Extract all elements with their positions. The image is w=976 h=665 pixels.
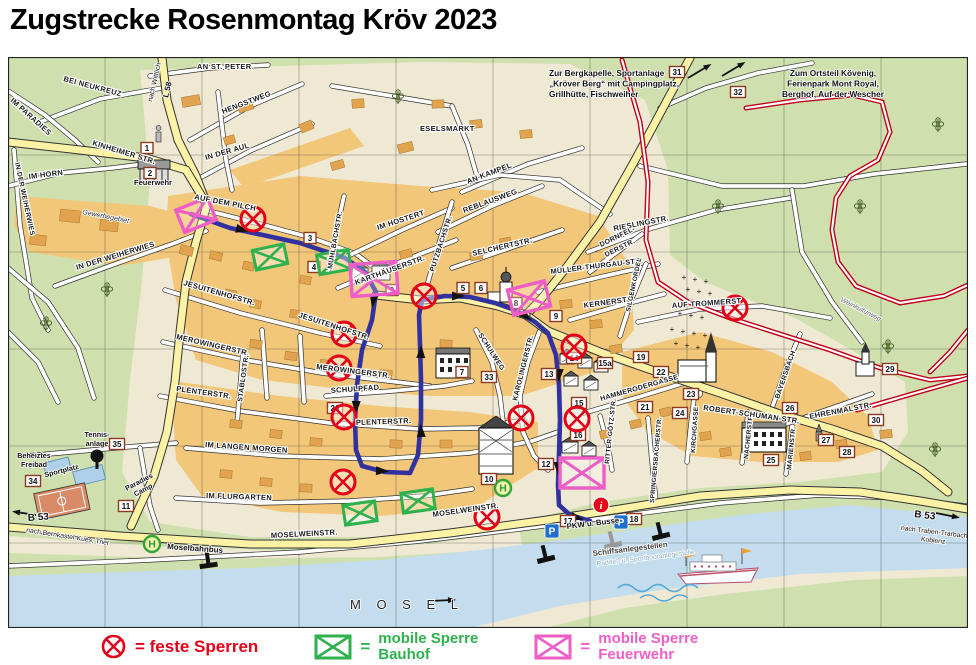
route-marker: 5 <box>457 283 469 294</box>
grave-cross-icon: + <box>703 331 708 340</box>
route-marker: 12 <box>539 459 554 470</box>
circle <box>694 565 696 567</box>
route-marker: 27 <box>819 435 834 446</box>
route-marker-number: 9 <box>554 312 559 321</box>
route-marker-number: 26 <box>786 404 795 413</box>
feste-sperre-icon <box>331 470 355 494</box>
route-marker-number: 12 <box>542 460 551 469</box>
map-annotation-line: Tennis- <box>84 430 110 439</box>
building <box>300 484 312 492</box>
building <box>800 451 812 460</box>
building <box>260 478 273 487</box>
bus-stop-icon: H <box>144 536 160 552</box>
route-marker: 21 <box>638 402 653 413</box>
mobile-sperre-feuerwehr-icon <box>560 458 604 488</box>
map-annotation-line: anlage <box>86 439 109 448</box>
map-annotation-line: Ferienpark Mont Royal, <box>787 79 879 89</box>
building <box>230 419 243 428</box>
building <box>699 431 711 440</box>
route-marker-number: 31 <box>673 68 682 77</box>
rect <box>448 367 452 372</box>
grave-cross-icon: + <box>708 289 713 298</box>
route-marker: 32 <box>731 87 746 98</box>
map-annotation-line: B 53 <box>27 512 49 524</box>
route-marker: 31 <box>670 67 685 78</box>
route-marker-number: 22 <box>657 368 666 377</box>
map-annotation: Zum Ortsteil Kövenig,Ferienpark Mont Roy… <box>782 68 885 99</box>
map-annotation-line: Freibad <box>21 460 47 469</box>
legend-bauhof-line2: Bauhof <box>378 646 430 663</box>
map-annotation: B 53 <box>27 512 49 524</box>
rect <box>778 441 782 446</box>
building <box>440 340 452 348</box>
legend-equals2: = <box>580 637 590 657</box>
route-marker: 25 <box>764 455 779 466</box>
route-marker: 11 <box>119 501 134 512</box>
route-marker-number: 16 <box>574 431 583 440</box>
circle <box>708 565 710 567</box>
route-marker: 7 <box>456 367 468 378</box>
parking-icon: P <box>545 524 559 538</box>
grave-cross-icon: + <box>689 311 694 320</box>
building <box>560 299 573 308</box>
rect <box>456 358 460 363</box>
route-marker-number: 18 <box>630 515 639 524</box>
rect <box>762 432 766 437</box>
route-marker-number: 27 <box>822 436 831 445</box>
route-marker-number: 24 <box>676 409 685 418</box>
route-marker: 9 <box>550 311 562 322</box>
legend-mobile-sperre-feuerwehr: = mobile Sperre Feuerwehr <box>534 631 698 663</box>
bus-stop-icon: H <box>495 480 511 496</box>
circle <box>722 565 724 567</box>
route-marker: 34 <box>26 476 41 487</box>
feste-sperre-icon <box>412 284 436 308</box>
map-annotation-line: Berghof, Auf der Wescher <box>782 89 885 99</box>
route-marker-number: 10 <box>485 475 494 484</box>
building <box>285 351 298 361</box>
map-legend: = feste Sperren = mobile Sperre Bauhof = <box>0 628 976 665</box>
text: H <box>148 539 156 551</box>
map-annotation: Feuerwehr <box>134 178 172 187</box>
grave-cross-icon: + <box>693 275 698 284</box>
route-marker: 35 <box>110 439 125 450</box>
route-marker: 26 <box>783 403 798 414</box>
feuerwehr-icon <box>534 634 572 660</box>
text: H <box>499 483 507 495</box>
rect <box>754 441 758 446</box>
rect <box>778 432 782 437</box>
tennis-icon <box>91 450 104 463</box>
building <box>59 209 80 223</box>
circle <box>729 565 731 567</box>
route-marker: 23 <box>684 389 699 400</box>
route-marker-number: 34 <box>29 477 38 486</box>
route-marker: 18 <box>627 514 642 525</box>
route-marker: 1 <box>141 143 153 154</box>
building <box>30 234 47 246</box>
route-marker-number: 28 <box>843 448 852 457</box>
route-marker-number: 33 <box>485 373 494 382</box>
legend-bauhof-label: mobile Sperre Bauhof <box>378 631 478 663</box>
rect <box>754 432 758 437</box>
feste-sperre-icon <box>100 633 127 660</box>
route-marker: 15a <box>598 358 613 369</box>
legend-feuerwehr-line2: Feuerwehr <box>598 646 674 663</box>
rect <box>440 358 444 363</box>
rect <box>440 367 444 372</box>
route-marker-number: 29 <box>886 365 895 374</box>
grave-cross-icon: + <box>696 343 701 352</box>
route-marker-number: 7 <box>460 368 465 377</box>
building <box>310 438 323 447</box>
building <box>440 440 452 448</box>
route-marker: 28 <box>840 447 855 458</box>
text: P <box>549 527 556 538</box>
route-marker-number: 32 <box>734 88 743 97</box>
route-marker-number: 13 <box>545 370 554 379</box>
building <box>250 339 263 349</box>
rect <box>436 348 470 354</box>
map-annotation-line: Feuerwehr <box>134 178 172 187</box>
route-marker: 22 <box>654 367 669 378</box>
map-annotation-line: Beheiztes <box>17 451 51 460</box>
route-marker-number: 23 <box>687 390 696 399</box>
rect <box>479 428 513 474</box>
feste-sperre-icon <box>509 406 533 430</box>
grave-cross-icon: + <box>681 327 686 336</box>
timber-hall-icon <box>479 416 513 474</box>
map-annotation: Tennis-anlage <box>84 430 110 448</box>
grave-cross-icon: + <box>678 309 683 318</box>
route-marker-number: 3 <box>308 234 313 243</box>
route-marker-number: 19 <box>637 353 646 362</box>
route-marker-number: 11 <box>122 502 131 511</box>
street-label: ESELSMARKT <box>420 124 475 133</box>
building <box>432 100 444 108</box>
route-marker-number: 2 <box>148 169 153 178</box>
building <box>880 429 893 438</box>
grave-cross-icon: + <box>685 341 690 350</box>
grave-cross-icon: + <box>700 313 705 322</box>
rect <box>678 360 710 382</box>
building <box>719 447 731 456</box>
legend-feste-sperren-label: = feste Sperren <box>135 637 258 657</box>
info-icon: i <box>593 497 609 513</box>
route-marker-number: 4 <box>312 263 317 272</box>
building <box>390 440 402 448</box>
building <box>609 344 622 354</box>
route-marker-number: 15a <box>598 359 612 368</box>
legend-feste-sperren: = feste Sperren <box>100 633 258 660</box>
grave-cross-icon: + <box>704 277 709 286</box>
route-marker: 3 <box>304 233 316 244</box>
map-annotation-line: Zur Bergkapelle, Sportanlage <box>549 68 665 78</box>
route-marker: 2 <box>144 168 156 179</box>
legend-bauhof-line1: mobile Sperre <box>378 630 478 647</box>
route-marker: 29 <box>883 364 898 375</box>
legend-equals: = <box>360 637 370 657</box>
route-marker: 13 <box>542 369 557 380</box>
grave-cross-icon: + <box>692 329 697 338</box>
rect <box>770 441 774 446</box>
feste-sperre-icon <box>332 405 356 429</box>
statue-icon <box>156 132 161 142</box>
rect <box>770 432 774 437</box>
legend-feuerwehr-label: mobile Sperre Feuerwehr <box>598 631 698 663</box>
map-annotation-line: Grillhütte, Fischweiher <box>549 89 639 99</box>
tennis-icon <box>96 462 99 469</box>
rect <box>862 352 869 364</box>
map-annotation-line: Zum Ortsteil Kövenig, <box>790 68 876 78</box>
map-annotation-line: „Kröver Berg“ mit Campingplatz, <box>549 79 679 89</box>
grave-cross-icon: + <box>697 287 702 296</box>
building <box>520 129 533 138</box>
route-marker: 33 <box>482 372 497 383</box>
page-title: Zugstrecke Rosenmontag Kröv 2023 <box>10 4 497 37</box>
circle <box>501 272 511 282</box>
page: Zugstrecke Rosenmontag Kröv 2023 +++++++… <box>0 0 976 665</box>
route-marker-number: 5 <box>461 284 466 293</box>
route-marker-number: 30 <box>872 416 881 425</box>
route-marker: 10 <box>482 474 497 485</box>
rect <box>706 352 716 382</box>
town-map: ++++++++++++++++++1234567899101112131415… <box>8 57 968 628</box>
grave-cross-icon: + <box>674 339 679 348</box>
rect <box>702 555 722 562</box>
route-marker-number: 25 <box>767 456 776 465</box>
statue-icon <box>156 126 161 131</box>
street-label: AN ST. PETER <box>197 62 252 71</box>
map-annotation-line: M O S E L <box>350 597 464 612</box>
building <box>590 319 603 328</box>
feste-sperre-icon <box>562 335 586 359</box>
mobile-sperre-bauhof-icon <box>343 501 377 525</box>
rect <box>464 358 468 363</box>
building <box>220 470 233 479</box>
route-marker-number: 35 <box>113 440 122 449</box>
feste-sperre-icon <box>565 407 589 431</box>
mobile-sperre-bauhof-icon <box>401 489 435 513</box>
legend-feuerwehr-line1: mobile Sperre <box>598 630 698 647</box>
circle <box>715 565 717 567</box>
building <box>270 429 283 438</box>
route-marker-number: 21 <box>641 403 650 412</box>
route-marker-number: 1 <box>145 144 150 153</box>
grave-cross-icon: + <box>670 325 675 334</box>
route-marker-number: 6 <box>479 284 484 293</box>
route-marker: 6 <box>475 283 487 294</box>
route-marker: 30 <box>869 415 884 426</box>
grave-cross-icon: + <box>682 273 687 282</box>
legend-mobile-sperre-bauhof: = mobile Sperre Bauhof <box>314 631 478 663</box>
map-annotation: BeheiztesFreibad <box>17 451 51 469</box>
building <box>299 275 311 285</box>
route-marker: 19 <box>634 352 649 363</box>
bauhof-icon <box>314 634 352 660</box>
building <box>352 99 365 109</box>
rect <box>448 358 452 363</box>
map-annotation: M O S E L <box>350 597 464 612</box>
circle <box>701 565 703 567</box>
route-marker: 24 <box>673 408 688 419</box>
rect <box>762 441 766 446</box>
grave-cross-icon: + <box>686 285 691 294</box>
